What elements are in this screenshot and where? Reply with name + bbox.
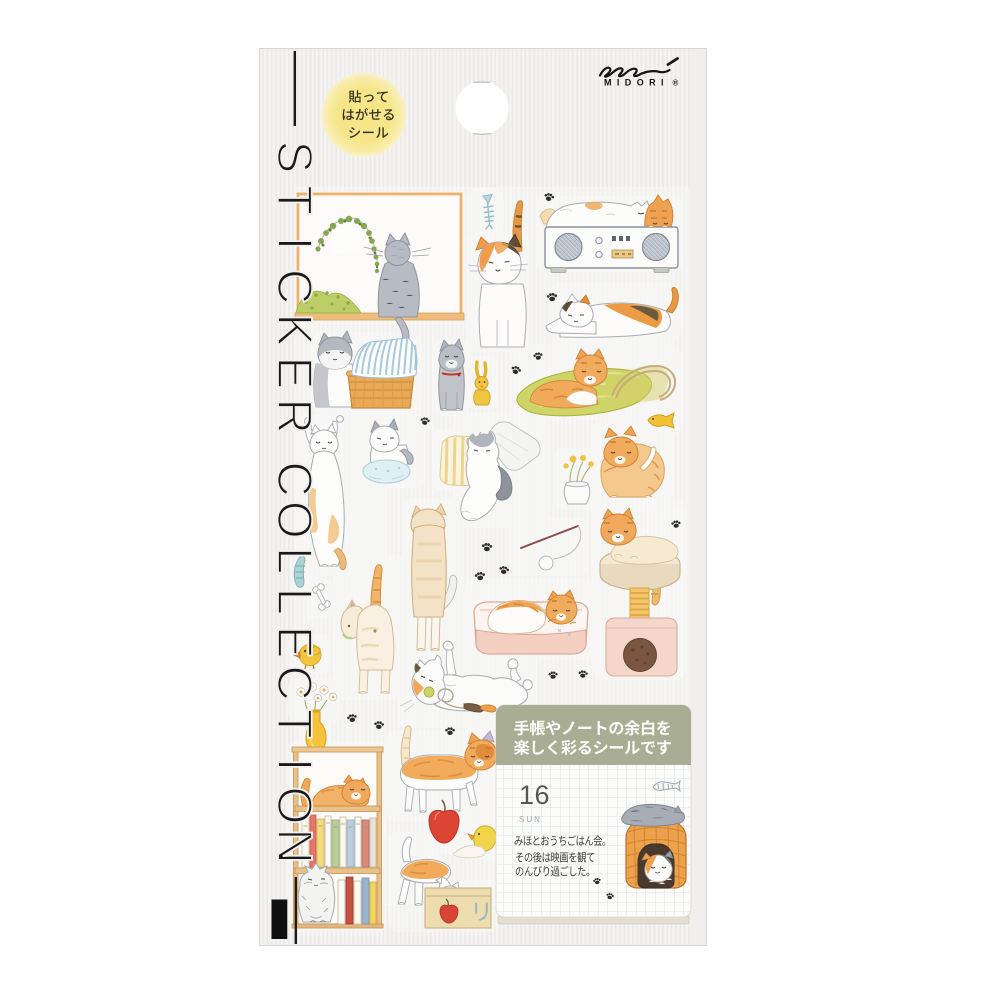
svg-text:N: N	[267, 829, 321, 864]
svg-text:K: K	[267, 313, 321, 346]
svg-text:MIDORI: MIDORI	[604, 78, 669, 88]
svg-text:C: C	[267, 461, 321, 496]
svg-text:C: C	[267, 665, 321, 700]
svg-text:I: I	[267, 758, 321, 772]
svg-text:S: S	[267, 141, 321, 174]
svg-text:O: O	[267, 501, 321, 539]
svg-text:O: O	[267, 786, 321, 824]
svg-text:L: L	[267, 588, 321, 615]
svg-text:T: T	[267, 709, 321, 739]
svg-text:E: E	[267, 626, 321, 659]
svg-text:I: I	[267, 237, 321, 251]
svg-text:L: L	[267, 547, 321, 574]
svg-text:T: T	[267, 185, 321, 215]
svg-text:®: ®	[673, 79, 679, 88]
svg-text:C: C	[267, 269, 321, 304]
svg-text:E: E	[267, 357, 321, 390]
svg-text:R: R	[267, 399, 321, 434]
svg-text:SUN: SUN	[519, 815, 542, 824]
svg-text:16: 16	[519, 780, 550, 810]
